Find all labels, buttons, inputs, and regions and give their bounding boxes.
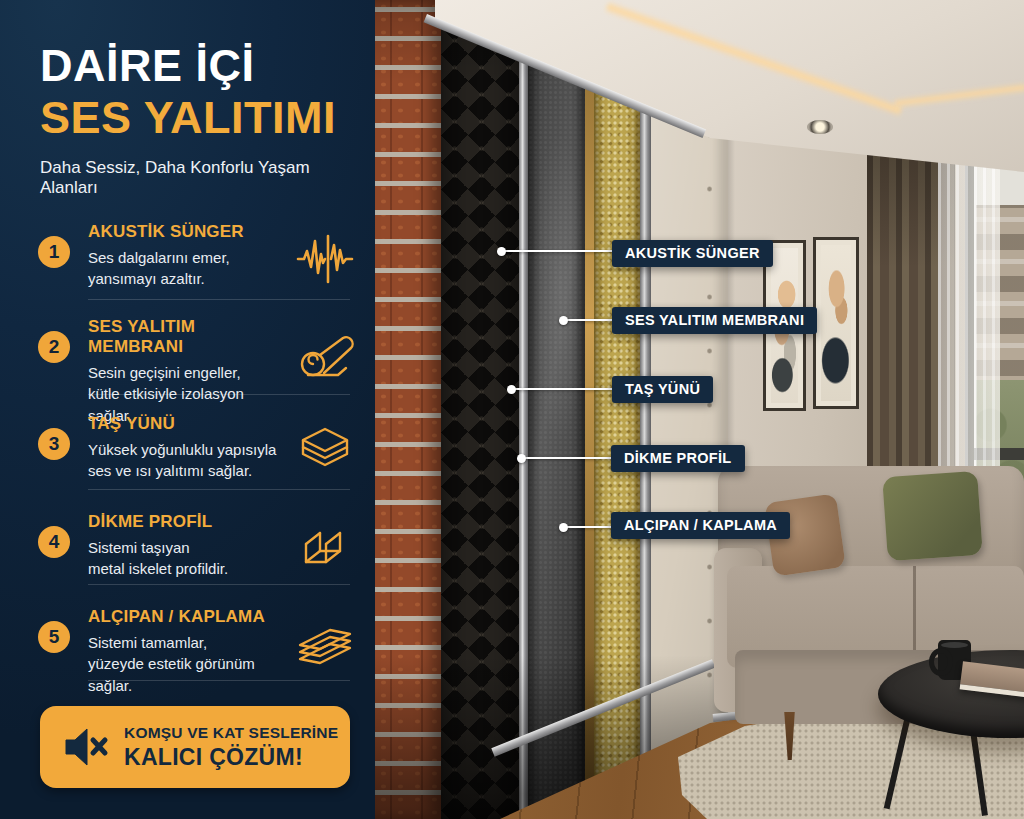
divider xyxy=(88,680,350,681)
item-title: DİKME PROFİL xyxy=(88,512,292,532)
leader-dot xyxy=(517,454,526,463)
panel-sheets-icon xyxy=(296,617,354,671)
layer-label: SES YALITIM MEMBRANI xyxy=(612,307,817,334)
step-number-badge: 2 xyxy=(38,331,70,363)
u-profile-icon xyxy=(296,522,354,576)
divider xyxy=(88,584,350,585)
abstract-art xyxy=(821,245,851,401)
list-item-dikme-profil: 4 DİKME PROFİL Sistemi taşıyan metal isk… xyxy=(38,512,356,580)
green-pillow xyxy=(882,471,983,561)
leader-line xyxy=(565,319,613,321)
leader-dot xyxy=(497,247,506,256)
layer-label: ALÇIPAN / KAPLAMA xyxy=(611,512,790,539)
step-number-badge: 4 xyxy=(38,526,70,558)
list-item-akustik-sunger: 1 AKUSTİK SÜNGER Ses dalgalarını emer, y… xyxy=(38,222,356,290)
layer-label: TAŞ YÜNÜ xyxy=(612,376,713,403)
leader-line xyxy=(565,526,612,528)
divider xyxy=(88,299,350,300)
info-panel: DAİRE İÇİ SES YALITIMI Daha Sessiz, Daha… xyxy=(0,0,375,819)
item-title: SES YALITIM MEMBRANI xyxy=(88,317,292,357)
page-title-line2: SES YALITIMI xyxy=(40,92,360,144)
list-item-tas-yunu: 3 TAŞ YÜNÜ Yüksek yoğunluklu yapısıyla s… xyxy=(38,414,356,482)
leader-line xyxy=(523,457,612,459)
divider xyxy=(88,489,350,490)
item-title: TAŞ YÜNÜ xyxy=(88,414,292,434)
step-number-badge: 3 xyxy=(38,428,70,460)
sound-insulation-infographic: DAİRE İÇİ SES YALITIMI Daha Sessiz, Daha… xyxy=(0,0,1024,819)
leader-line xyxy=(503,250,613,252)
item-description: Yüksek yoğunluklu yapısıyla ses ve ısı y… xyxy=(88,439,292,482)
stacked-layers-icon xyxy=(296,424,354,478)
list-item-ses-yalitim-membrani: 2 SES YALITIM MEMBRANI Sesin geçişini en… xyxy=(38,317,356,426)
leader-dot xyxy=(559,523,568,532)
divider xyxy=(88,394,350,395)
wall-cross-section-photo xyxy=(375,0,1024,819)
leader-dot xyxy=(559,316,568,325)
membrane-roll-icon xyxy=(296,327,354,381)
page-subtitle: Daha Sessiz, Daha Konforlu Yaşam Alanlar… xyxy=(40,158,360,198)
art-frame-right xyxy=(813,237,859,409)
leader-dot xyxy=(507,385,516,394)
page-title-line1: DAİRE İÇİ xyxy=(40,40,360,92)
cta-line2: KALICI ÇÖZÜM! xyxy=(124,744,338,771)
waveform-icon xyxy=(296,232,354,286)
layer-label: DİKME PROFİL xyxy=(611,445,745,472)
list-item-alcipan-kaplama: 5 ALÇIPAN / KAPLAMA Sistemi tamamlar, yü… xyxy=(38,607,356,696)
step-number-badge: 5 xyxy=(38,621,70,653)
cta-button[interactable]: KOMŞU VE KAT SESLERİNE KALICI ÇÖZÜM! xyxy=(40,706,350,788)
item-title: ALÇIPAN / KAPLAMA xyxy=(88,607,292,627)
cta-line1: KOMŞU VE KAT SESLERİNE xyxy=(124,724,338,742)
step-number-badge: 1 xyxy=(38,236,70,268)
muted-speaker-icon xyxy=(62,725,110,769)
item-title: AKUSTİK SÜNGER xyxy=(88,222,292,242)
item-description: Sistemi tamamlar, yüzeyde estetik görünü… xyxy=(88,632,292,696)
item-description: Sistemi taşıyan metal iskelet profildir. xyxy=(88,537,292,580)
layer-label: AKUSTİK SÜNGER xyxy=(612,240,773,267)
leader-line xyxy=(513,388,613,390)
recessed-downlight xyxy=(807,120,833,134)
header: DAİRE İÇİ SES YALITIMI Daha Sessiz, Daha… xyxy=(40,40,360,198)
item-description: Ses dalgalarını emer, yansımayı azaltır. xyxy=(88,247,292,290)
